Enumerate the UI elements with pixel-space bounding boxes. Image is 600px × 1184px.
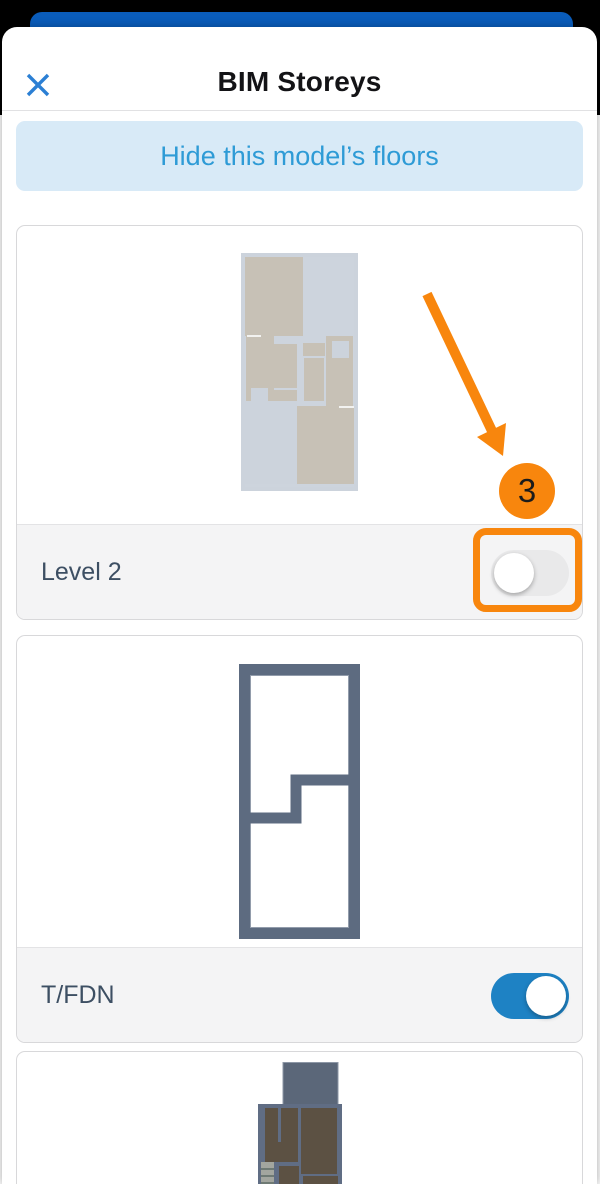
annotation-highlight-frame <box>473 528 582 612</box>
hide-floors-button[interactable]: Hide this model’s floors <box>16 121 583 191</box>
lower-storey-floor-plan-thumbnail <box>258 1062 342 1184</box>
annotation-step-badge: 3 <box>499 463 555 519</box>
storey-card-tfdn: T/FDN <box>16 635 583 1043</box>
level-2-floor-plan-thumbnail <box>241 253 358 491</box>
storey-row-tfdn: T/FDN <box>17 947 582 1043</box>
storey-thumbnail-area <box>17 1052 582 1184</box>
storey-label: T/FDN <box>41 981 115 1010</box>
screen: BIM Storeys Hide this model’s floors <box>0 0 600 1184</box>
storey-thumbnail-area <box>17 636 582 947</box>
modal-header: BIM Storeys <box>2 27 597 110</box>
header-divider <box>2 110 597 111</box>
storey-visibility-toggle[interactable] <box>491 973 569 1019</box>
toggle-knob <box>526 976 566 1016</box>
page-title: BIM Storeys <box>2 66 597 98</box>
storey-label: Level 2 <box>41 558 122 587</box>
annotation-arrow <box>415 286 515 466</box>
storey-card-lower <box>16 1051 583 1184</box>
tfdn-floor-plan-thumbnail <box>239 664 360 939</box>
